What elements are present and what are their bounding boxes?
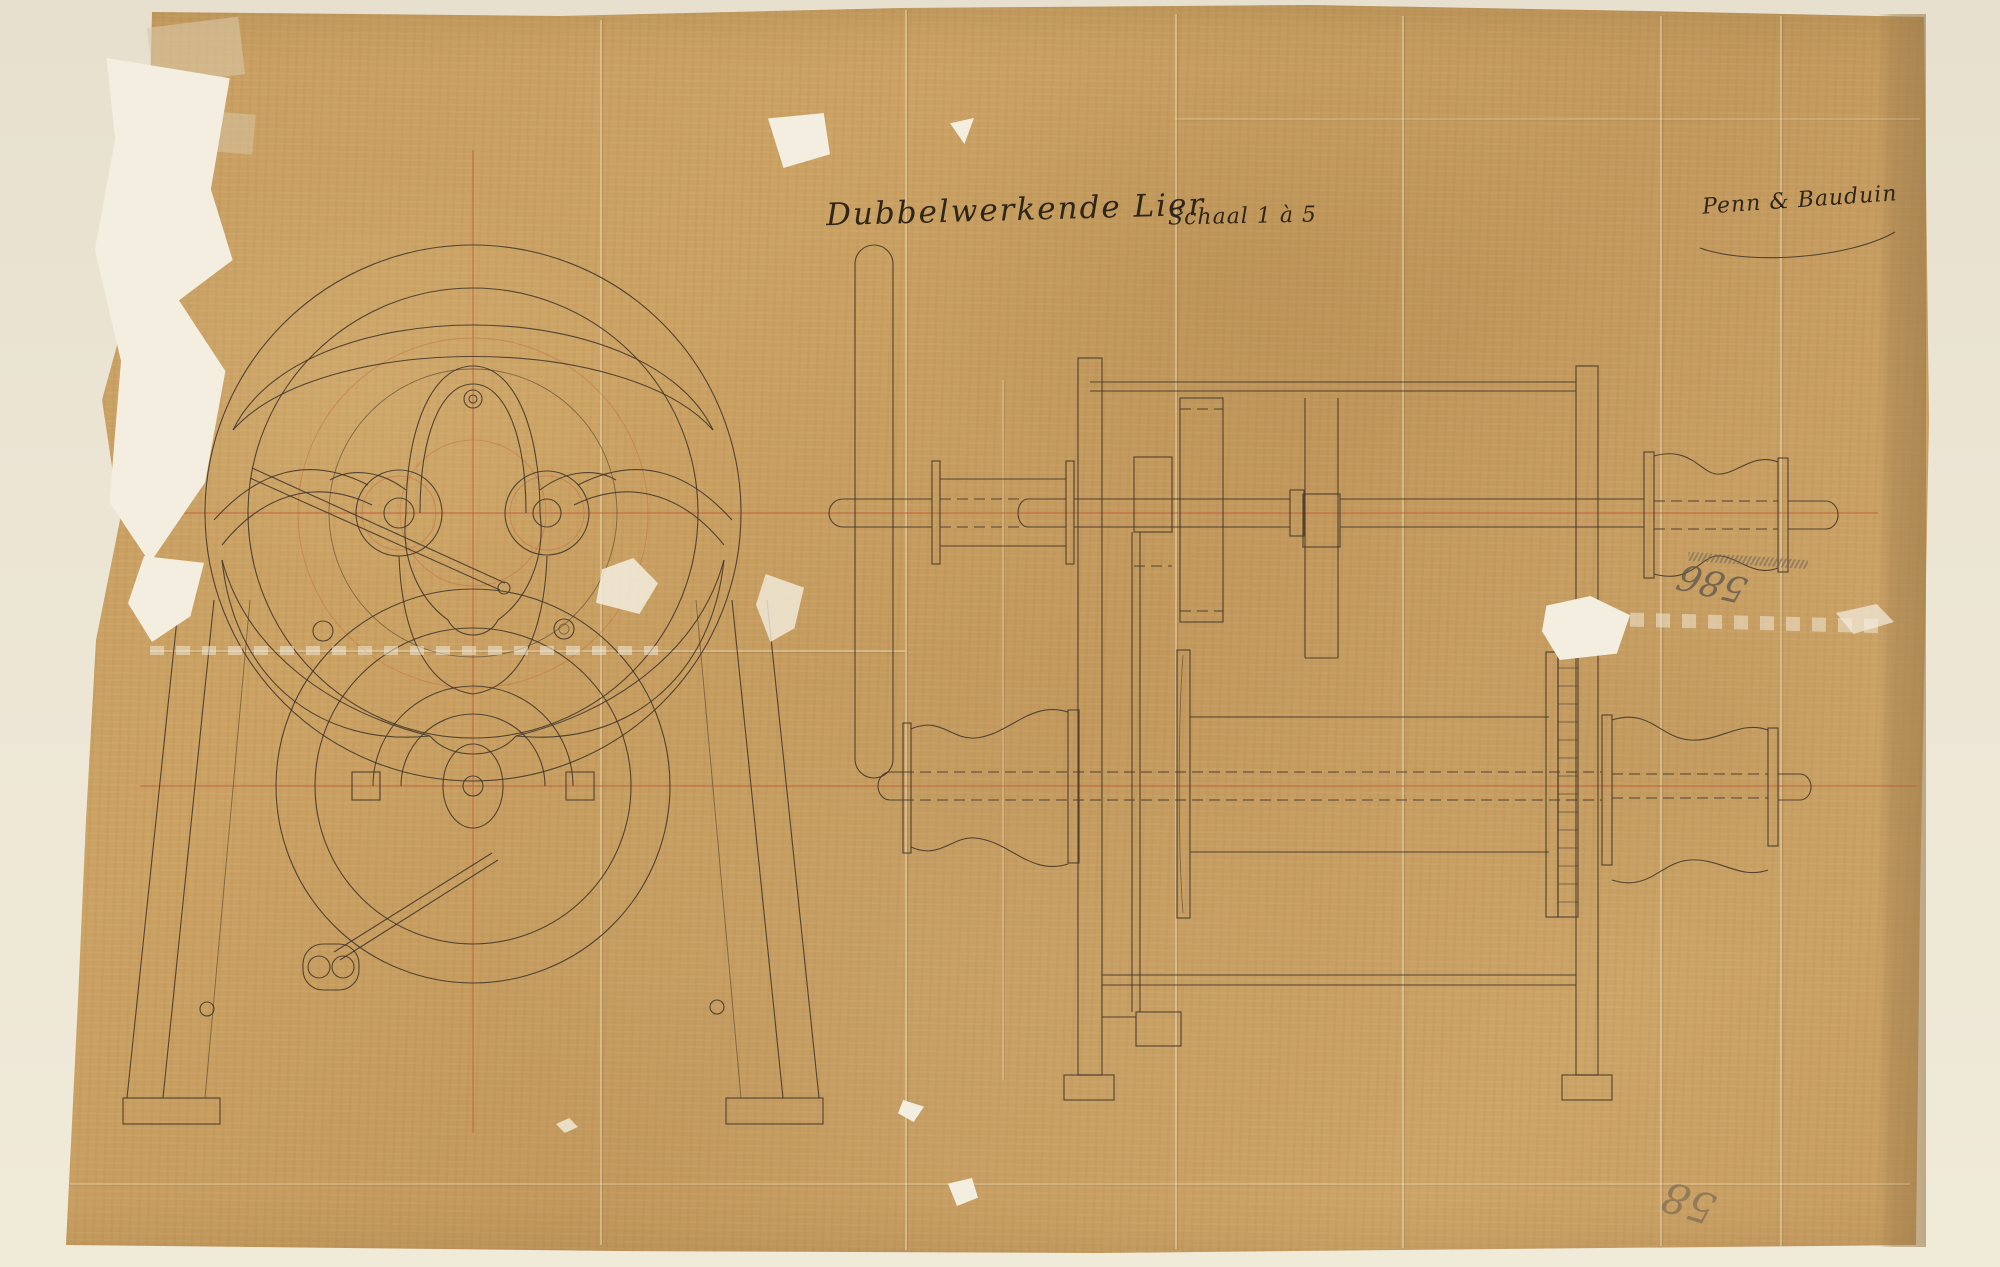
red-centerlines (140, 150, 1917, 1133)
signature-flourish (1700, 232, 1895, 258)
technical-drawing-linework (0, 0, 2000, 1267)
scanned-technical-drawing: Dubbelwerkende Lier Schaal 1 à 5 Penn & … (0, 0, 2000, 1267)
side-view-winch (829, 245, 1838, 1100)
scale-note: Schaal 1 à 5 (1168, 202, 1317, 230)
tear-streak (150, 646, 670, 655)
